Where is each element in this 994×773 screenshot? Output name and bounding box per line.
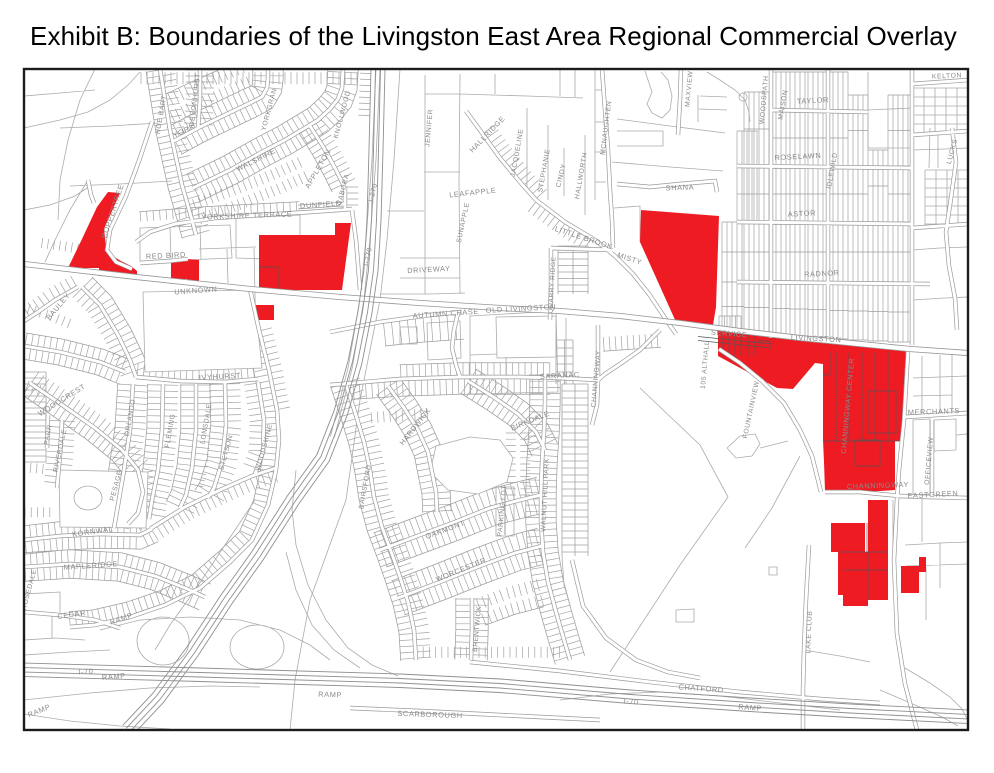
svg-text:ASTOR: ASTOR [787, 208, 816, 218]
svg-text:MERCHANTS: MERCHANTS [908, 406, 961, 417]
svg-text:RAMP: RAMP [318, 690, 342, 700]
svg-text:SHANA: SHANA [666, 183, 695, 193]
svg-text:TAYLOR: TAYLOR [797, 95, 830, 106]
svg-text:RAMP: RAMP [738, 702, 762, 713]
svg-text:I-70: I-70 [78, 666, 94, 676]
svg-text:RADNOR: RADNOR [804, 268, 840, 279]
svg-text:I-70: I-70 [623, 696, 639, 706]
svg-text:LAKE CLUB: LAKE CLUB [805, 610, 813, 653]
